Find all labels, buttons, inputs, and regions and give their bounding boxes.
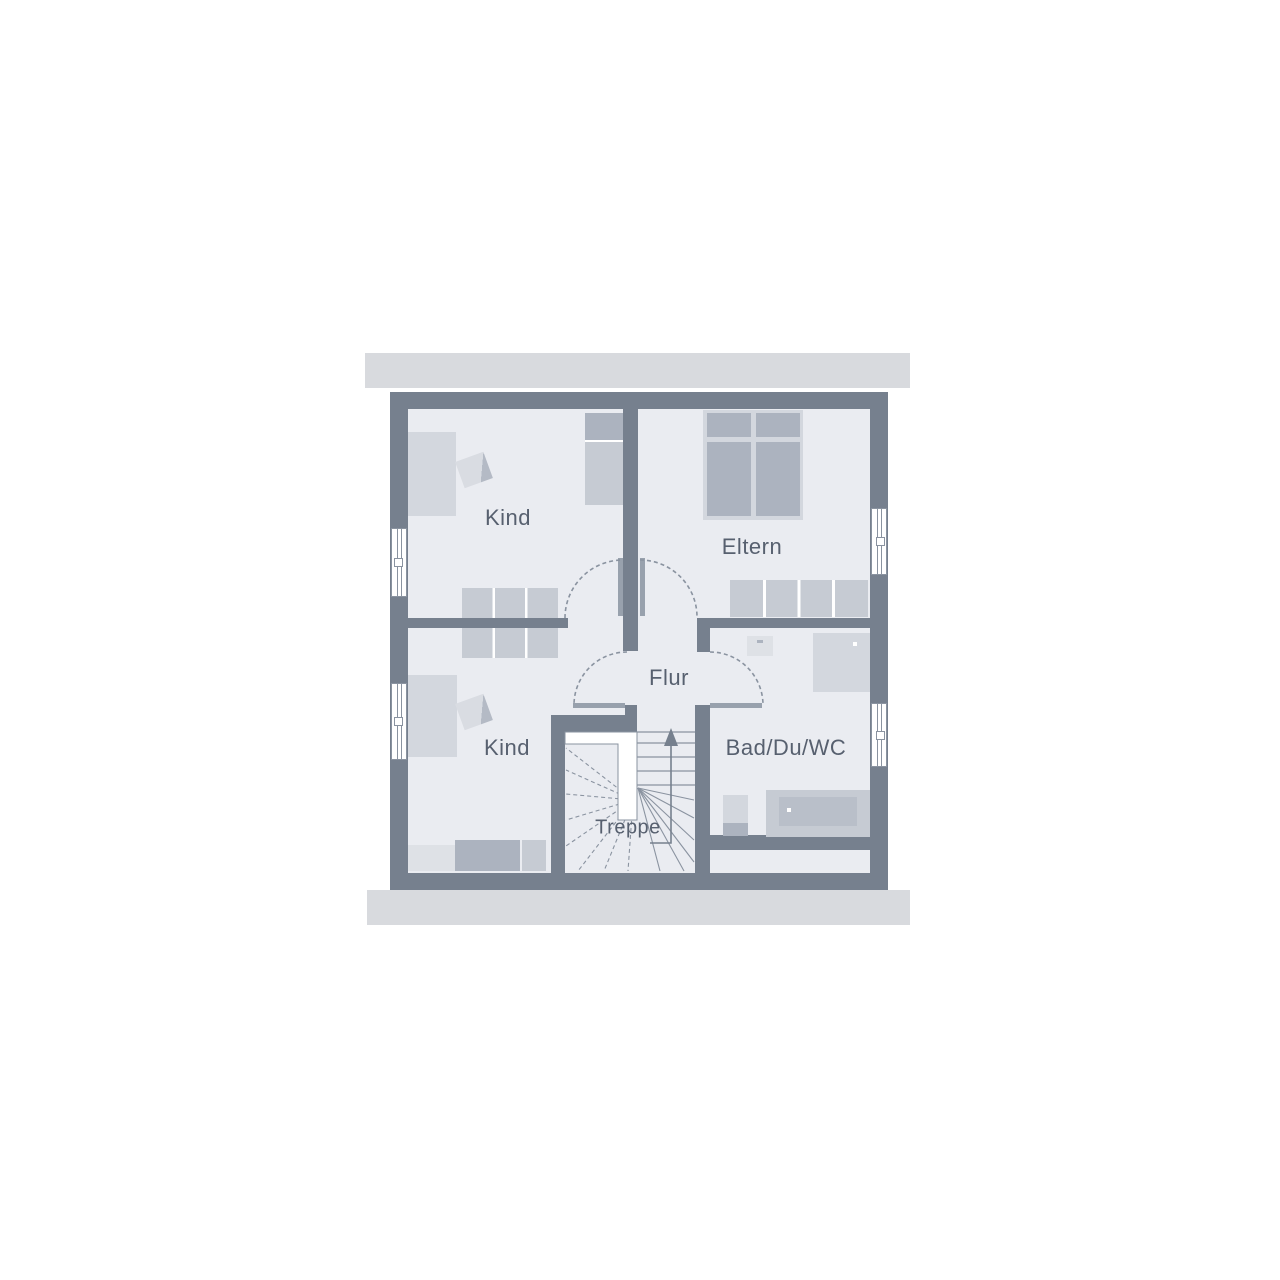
wall-stair-east [695,705,710,873]
pillow-eltern-left [707,413,751,437]
room-label-eltern: Eltern [722,534,782,560]
wall-stair-west [551,715,565,873]
bed-kind-top [408,432,456,516]
floor-plan-canvas: Kind Eltern Kind Flur Bad/Du/WC Treppe [0,0,1280,1280]
window-handle [876,731,885,740]
dresser-side-kind-bottom [522,840,546,871]
window-kind-bottom [391,683,407,760]
void-strip [710,850,870,873]
wall-door-post [625,705,637,732]
door-leaf-eltern [640,558,645,616]
washbasin [747,636,773,656]
wall-bath-stub [697,628,710,652]
room-label-kind-top: Kind [485,505,531,531]
pillow-eltern-right [756,413,800,437]
room-label-treppe: Treppe [595,817,661,840]
wardrobe-kind-bottom [462,628,558,658]
door-leaf-bath [710,703,762,708]
cabinet-kind-top-upper [585,413,623,442]
room-label-kind-bottom: Kind [484,735,530,761]
door-leaf-kind-top [618,558,623,616]
window-handle [876,537,885,546]
wardrobe-eltern [730,580,868,617]
shower [813,633,870,692]
wall-eltern-south [697,618,870,628]
bathtub-drain [787,808,791,812]
window-handle [394,558,403,567]
window-eltern [871,508,887,575]
wardrobe-kind-top [462,588,558,618]
window-handle [394,717,403,726]
rug-kind-bottom [408,845,455,871]
bed-kind-bottom [408,675,457,757]
roof-slab-bottom [367,890,910,925]
toilet [723,795,748,823]
shower-drain [853,642,857,646]
window-bath [871,703,887,767]
toilet-base [723,823,748,836]
dresser-kind-bottom [455,840,520,871]
mattress-eltern-left [707,442,751,516]
room-label-flur: Flur [649,665,689,691]
mattress-eltern-right [756,442,800,516]
washbasin-tap [757,640,763,643]
door-leaf-kind-bottom [573,703,625,708]
window-kind-top [391,528,407,597]
roof-slab-top [365,353,910,388]
room-label-bad: Bad/Du/WC [726,735,847,761]
wall-kind-top-south [390,618,568,628]
wall-bath-south [710,835,870,850]
wall-center-vertical [623,409,638,651]
